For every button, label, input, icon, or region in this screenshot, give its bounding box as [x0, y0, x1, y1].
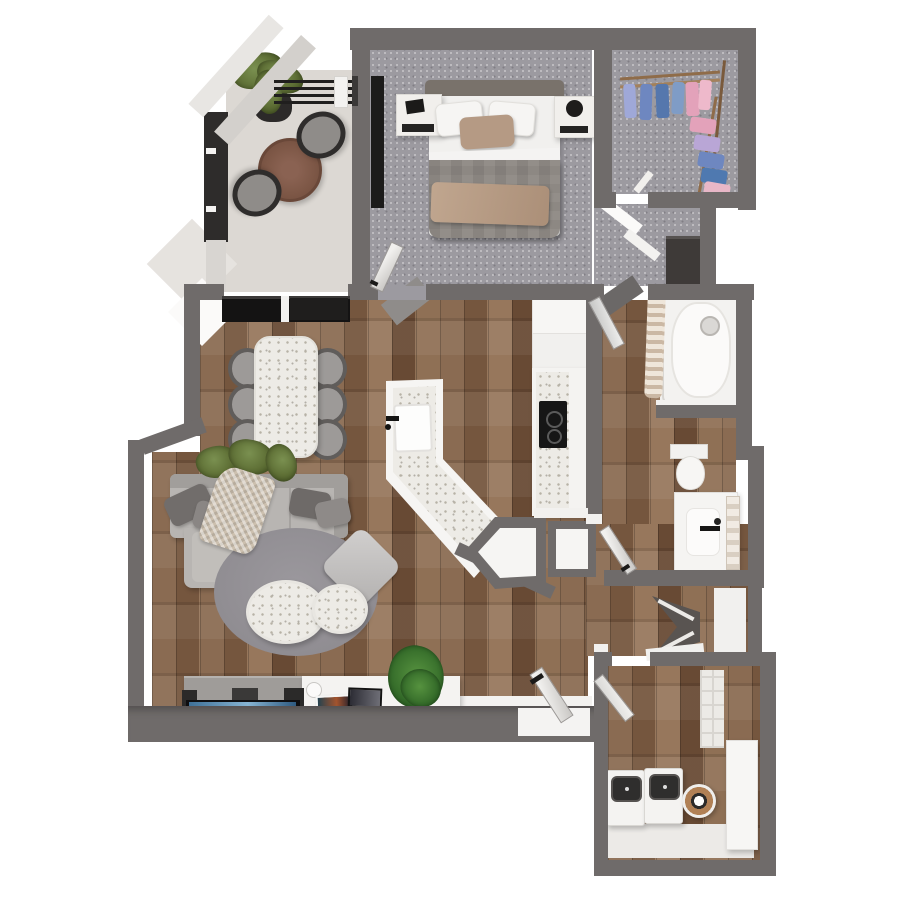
shower-curtain [644, 294, 666, 399]
hanging-clothes [623, 84, 637, 119]
privacy-wall-slit-2 [206, 206, 216, 212]
tub-pony-wall-cap [656, 400, 736, 405]
bed-throw-blanket [430, 182, 549, 226]
wall-bathroom-right-lower [748, 446, 764, 588]
dryer-lid [649, 774, 680, 800]
wall-top [350, 28, 756, 50]
cooktop-burner [546, 411, 563, 428]
slider-panel [290, 298, 348, 320]
hanging-clothes [698, 80, 712, 111]
wall-bedroom-closet-divider [594, 28, 612, 204]
vanity-sink [686, 508, 720, 556]
island-faucet [386, 416, 399, 421]
hanging-clothes [655, 84, 669, 118]
bedroom-wall-tv [371, 76, 384, 208]
hanging-clothes [685, 82, 699, 116]
divider-end-cap [586, 514, 602, 524]
washer-lid [611, 776, 642, 802]
slider-mullion [281, 296, 289, 322]
nightstand-picture-frame [405, 99, 425, 114]
wall-laundry-right [760, 652, 776, 876]
tub-pony-wall [656, 404, 736, 418]
nightstand-left-shelf-slot [402, 124, 434, 132]
sink-faucet [700, 526, 720, 531]
entry-pony-wall-rect [548, 521, 596, 577]
wall-laundry-top-b [650, 652, 774, 666]
counter-end-cap [534, 508, 588, 518]
wall-bedroom-left [352, 28, 370, 292]
balcony-sliding-glass-door [222, 296, 350, 322]
wall-left-upper [184, 284, 200, 436]
linen-cabinet [666, 236, 700, 289]
bathtub-basin [671, 302, 731, 398]
wall-closet-bottom-left [594, 192, 616, 208]
water-heater [682, 784, 716, 818]
hanging-clothes [639, 84, 652, 120]
shower-head [700, 316, 720, 336]
laundry-storage-cabinet [726, 740, 758, 850]
dining-table [254, 336, 318, 458]
wall-left-lower [128, 440, 144, 722]
coffee-table-small [312, 584, 368, 634]
wall-laundry-top-a [594, 652, 612, 666]
laundry-left-cap [594, 644, 608, 652]
towel-ladder [726, 496, 740, 570]
wall-bathroom-right-connector [736, 446, 764, 460]
toilet-bowl [676, 456, 705, 490]
railing-post-dark [352, 76, 358, 106]
bedroom-doorway-carpet [378, 286, 426, 300]
wall-living-top-c [426, 284, 604, 300]
privacy-wall-slit [206, 148, 216, 154]
laundry-wall-shelving [700, 670, 724, 748]
wall-closet-right [738, 28, 756, 210]
sphere-table-lamp [566, 100, 583, 117]
door-handle [370, 280, 379, 287]
floor-plan-render [0, 0, 900, 900]
balcony-railing [274, 78, 358, 108]
island-sink [393, 403, 433, 452]
wall-bathroom-right-upper [736, 284, 752, 458]
nightstand-right-shelf-slot [560, 126, 588, 133]
tall-cabinet [532, 333, 590, 371]
wall-laundry-bottom [594, 860, 776, 876]
front-door-handle [530, 673, 544, 685]
cooktop-burner [547, 429, 562, 444]
nook-white-closet-strip [714, 588, 746, 654]
railing-post-white [334, 76, 348, 108]
sink-faucet-knob [714, 518, 721, 525]
wall-left-diagonal [139, 417, 206, 455]
island-faucet-knob [385, 424, 391, 430]
bed-accent-pillow [459, 114, 515, 150]
door-handle [621, 564, 631, 572]
hanging-clothes [671, 82, 685, 115]
